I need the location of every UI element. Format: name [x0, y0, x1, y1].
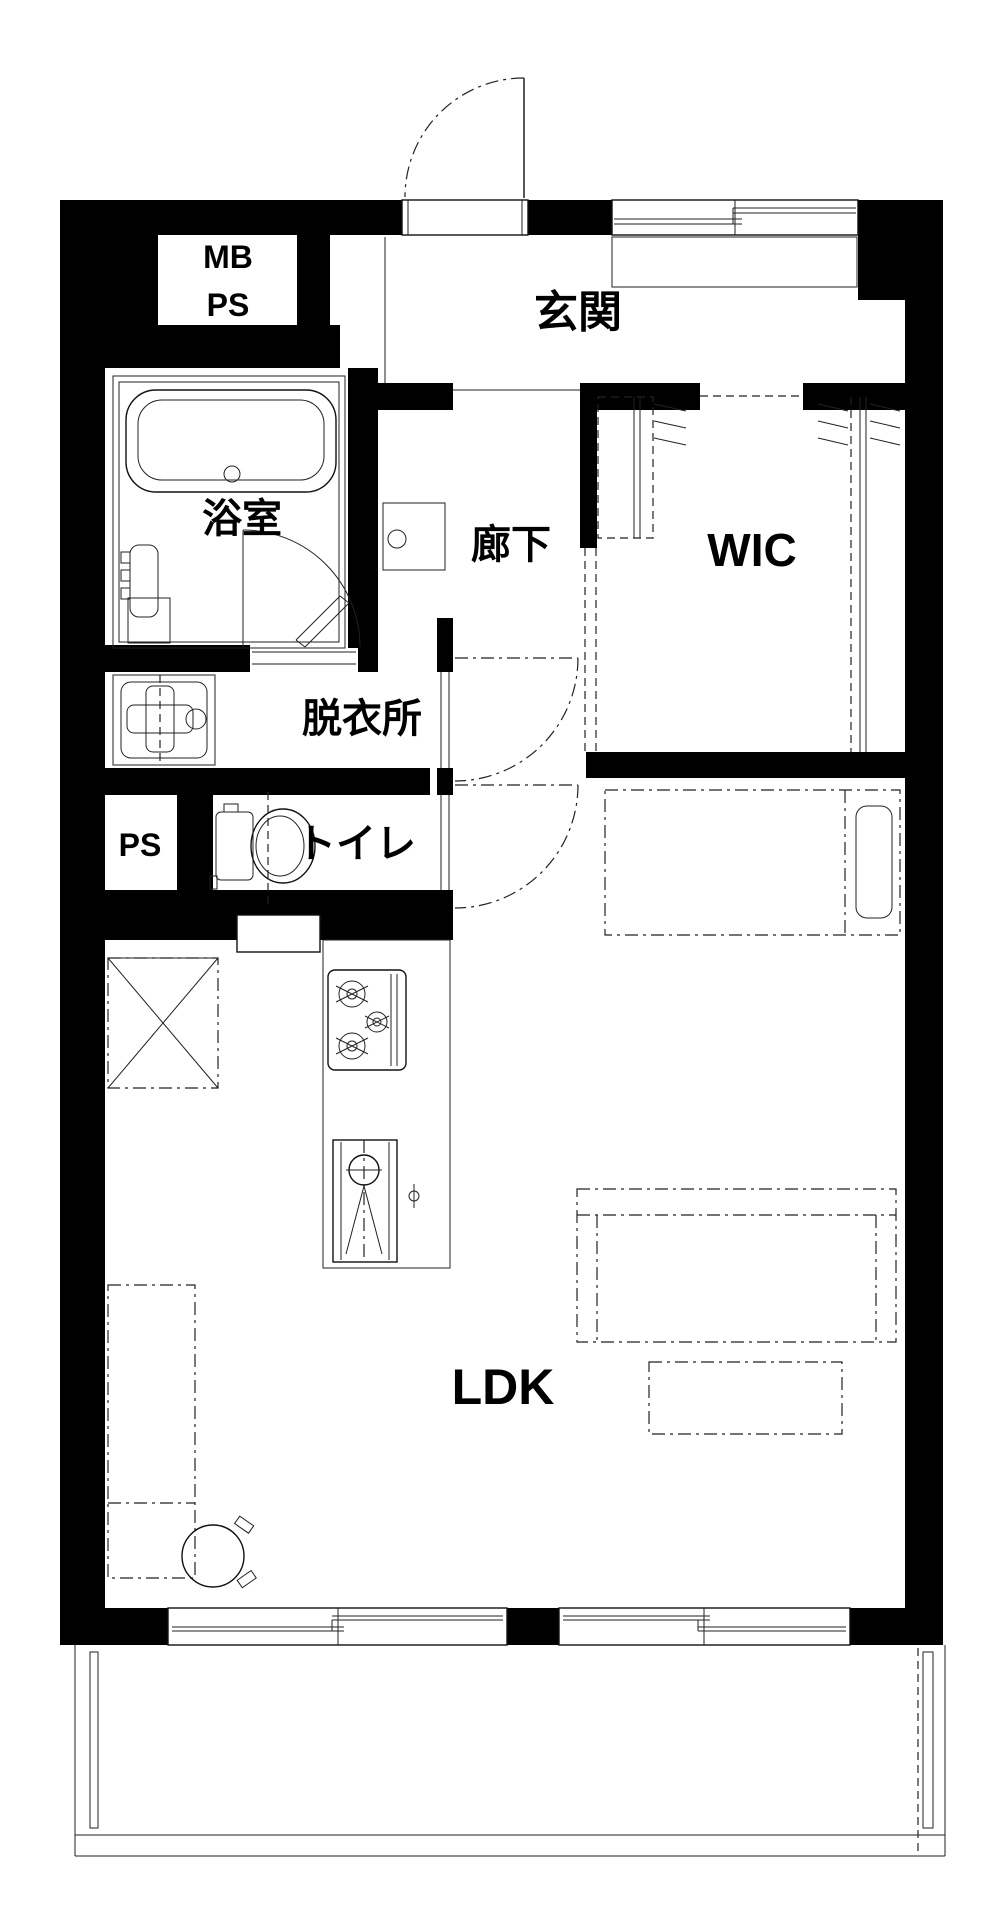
pipe-space-side-label: PS — [119, 827, 162, 863]
balcony-partition-icon — [923, 1652, 933, 1828]
faucet-knob — [121, 570, 130, 581]
entrance-counter — [612, 237, 857, 287]
low-table-icon — [649, 1362, 842, 1434]
corner-shelf-icon — [296, 640, 305, 647]
washbasin-icon — [383, 503, 445, 570]
sink-drain-line — [364, 1186, 382, 1254]
bath-door-swing-icon — [243, 530, 360, 647]
hanger-hook — [654, 421, 686, 428]
washbasin-faucet — [388, 530, 406, 548]
wall-bathroom-top — [105, 325, 340, 368]
wall-corridor-post-b — [437, 768, 453, 795]
sofa-icon — [577, 1189, 896, 1342]
wall-mbps-left — [105, 235, 158, 330]
wall-wic-left — [580, 410, 597, 548]
wall-top-mid — [528, 200, 612, 235]
wall-entrance-south-a — [378, 383, 453, 410]
wall-dressing-top-a — [60, 645, 250, 672]
wic-area: WIC — [585, 396, 900, 752]
entrance-door-swing-icon — [405, 78, 524, 197]
bathtub-icon — [126, 390, 336, 492]
burner — [336, 1033, 368, 1059]
floor-plan: 玄関 MB PS 浴室 廊下 — [0, 0, 1003, 1920]
sink-drain-line — [346, 1186, 364, 1254]
entrance-door-opening — [402, 200, 528, 235]
bath-stool — [128, 598, 170, 643]
wall-bottom-pier — [507, 1608, 561, 1645]
hanger-hook — [818, 438, 848, 445]
stool-tab — [237, 1571, 256, 1588]
toilet-label: トイレ — [296, 822, 416, 866]
door-swing-icon — [455, 785, 578, 908]
hallway-label: 廊下 — [471, 523, 551, 567]
stool-tab — [235, 1516, 254, 1533]
ldk-label: LDK — [452, 1359, 555, 1415]
wall-entrance-south-c — [803, 383, 905, 410]
meter-box-area: MB PS — [203, 239, 253, 323]
entrance-area: 玄関 — [385, 78, 858, 390]
wall-toilet-top — [60, 768, 430, 795]
kitchen-pass-niche — [237, 915, 320, 952]
shower-faucet-icon — [130, 545, 158, 617]
pipe-space-top-label: PS — [207, 287, 250, 323]
faucet-knob — [121, 552, 130, 563]
bed-pillow — [856, 806, 892, 918]
burner — [365, 1012, 389, 1032]
pan-drain — [186, 709, 206, 729]
bathtub-inner — [138, 400, 324, 480]
balcony-area — [75, 1608, 945, 1856]
wall-ps-right — [177, 795, 213, 890]
entrance-label: 玄関 — [534, 288, 622, 337]
wall-top-left — [60, 200, 402, 235]
wic-label: WIC — [707, 524, 796, 576]
kitchen-sink-icon — [333, 1140, 397, 1262]
tv-board-icon — [108, 1285, 195, 1578]
wall-dressing-top-b — [358, 645, 378, 672]
balcony-drain-panel — [90, 1652, 98, 1828]
meter-box-label: MB — [203, 239, 253, 275]
hanger-hook — [818, 421, 848, 428]
door-swing-icon — [455, 658, 578, 781]
toilet-button — [224, 804, 238, 812]
wall-corridor-post-a — [437, 618, 453, 672]
wall-ldk-north — [586, 752, 905, 778]
hanger-pipe-zone — [598, 397, 653, 538]
round-stool-icon — [182, 1525, 244, 1587]
bathroom-area: 浴室 — [113, 376, 360, 648]
hanger-hook — [870, 421, 900, 428]
burner — [336, 981, 368, 1007]
washing-machine-pan-inner — [121, 682, 207, 758]
wall-bottom-left-corner — [60, 1608, 168, 1645]
wall-mbps-right — [297, 235, 330, 330]
toilet-tank — [216, 812, 253, 880]
wall-right — [905, 200, 943, 1645]
hanger-hook — [870, 438, 900, 445]
dressing-room-label: 脱衣所 — [302, 697, 422, 741]
floor-plan-drawing: 玄関 MB PS 浴室 廊下 — [0, 0, 1003, 1920]
faucet-knob — [121, 588, 130, 599]
toilet-area: PS トイレ — [119, 792, 416, 905]
walls — [60, 200, 943, 1645]
bathroom-label: 浴室 — [202, 497, 282, 541]
kitchen-area — [108, 915, 450, 1268]
hanger-hook — [654, 438, 686, 445]
wall-bottom-right-corner — [850, 1608, 943, 1645]
